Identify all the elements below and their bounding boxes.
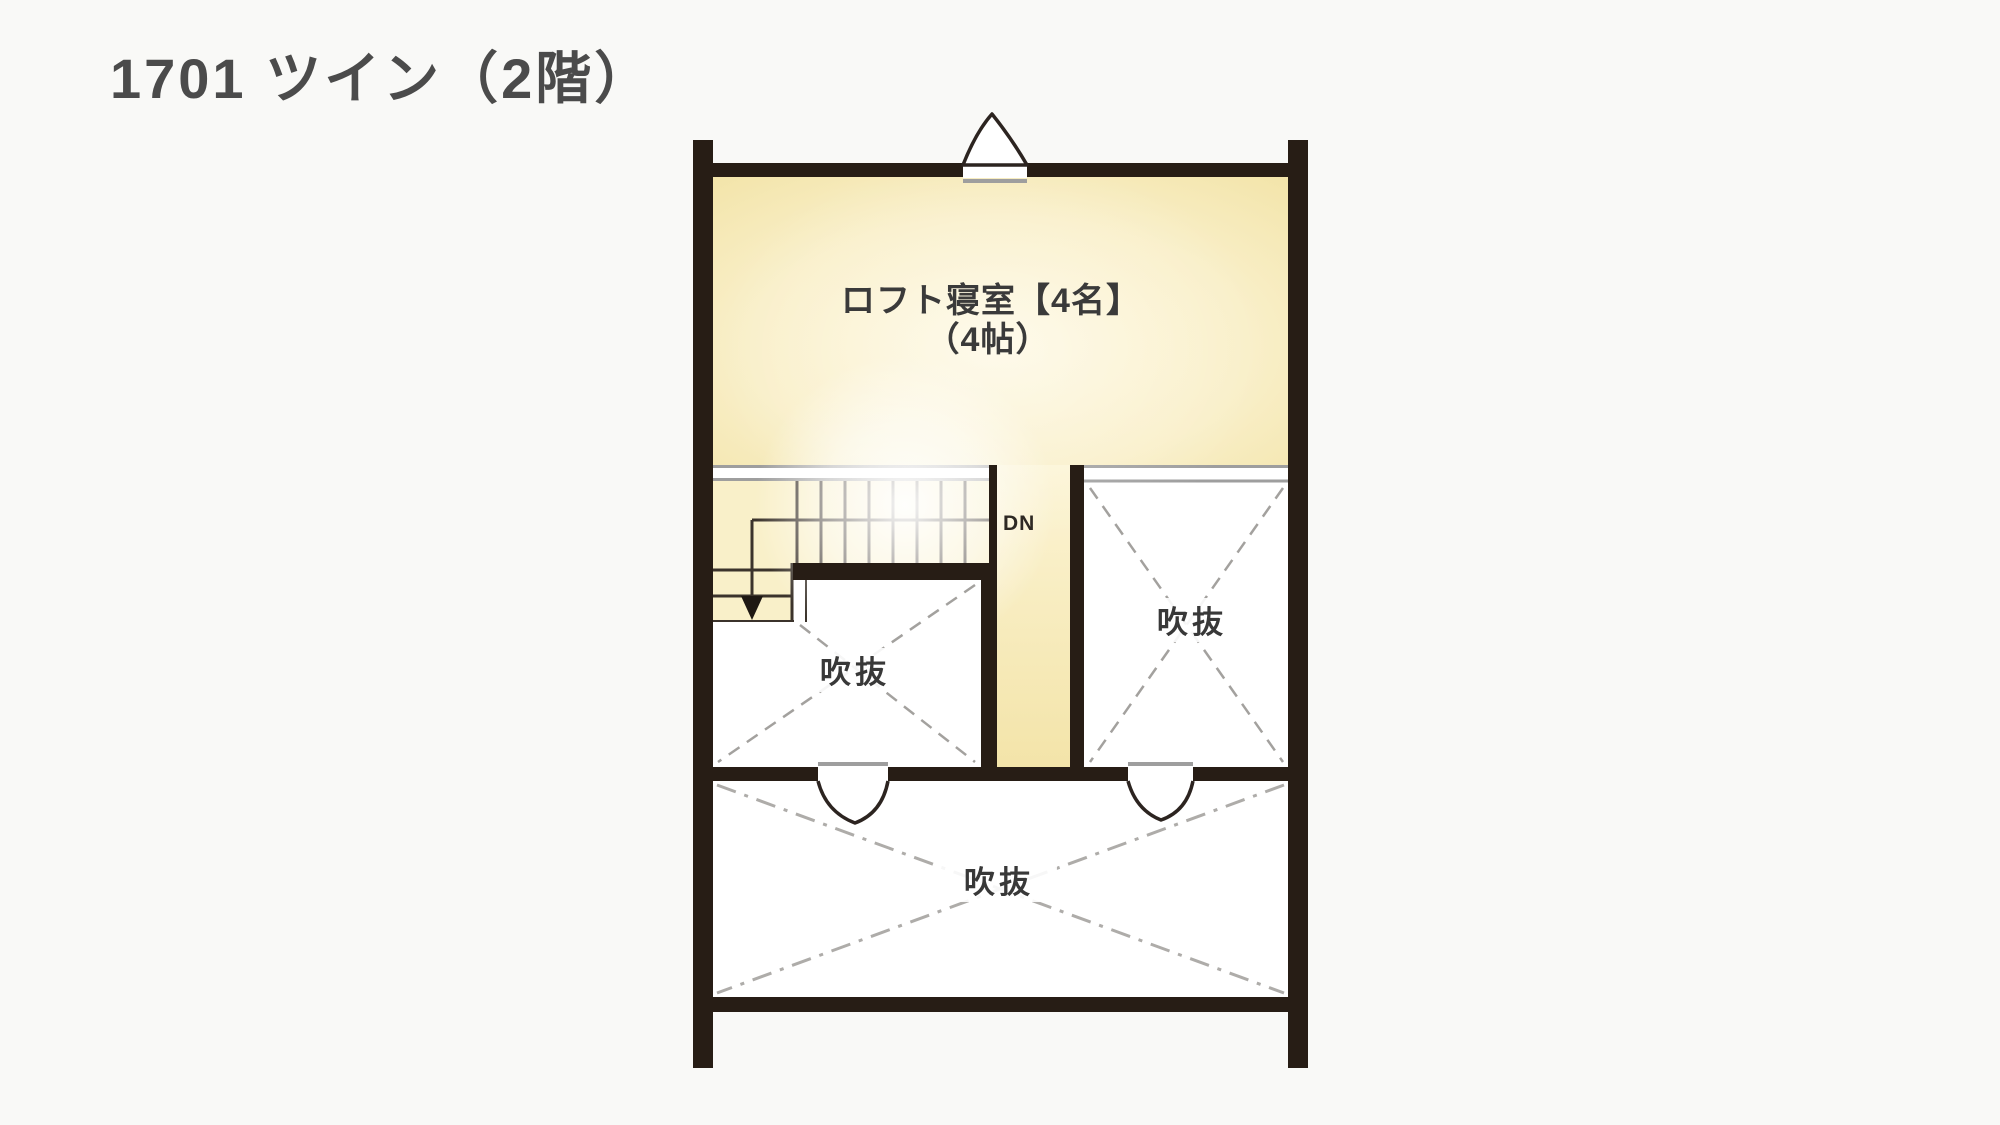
door-top	[963, 114, 1027, 181]
floor-plan-page: 1701 ツイン（2階）	[0, 0, 2000, 1125]
wall-left-void-right	[981, 563, 997, 781]
void-bottom-label: 吹抜	[964, 865, 1034, 900]
floor-plan: ロフト寝室【4名】 （4帖） DN 吹抜 吹抜 吹抜	[0, 0, 2000, 1125]
void-left-label: 吹抜	[820, 655, 890, 690]
wall-under-stairs	[793, 563, 997, 580]
wall-right	[1288, 140, 1308, 1068]
wall-stair-end	[989, 465, 997, 563]
wall-middle	[713, 767, 1288, 781]
wall-right-void-left	[1070, 465, 1084, 781]
void-right-label: 吹抜	[1157, 605, 1227, 640]
stair-dn-label: DN	[1003, 512, 1035, 535]
wall-left	[693, 140, 713, 1068]
loft-room-label: ロフト寝室【4名】	[841, 281, 1141, 320]
wall-bottom	[713, 997, 1288, 1012]
loft-room-size-label: （4帖）	[926, 320, 1051, 359]
